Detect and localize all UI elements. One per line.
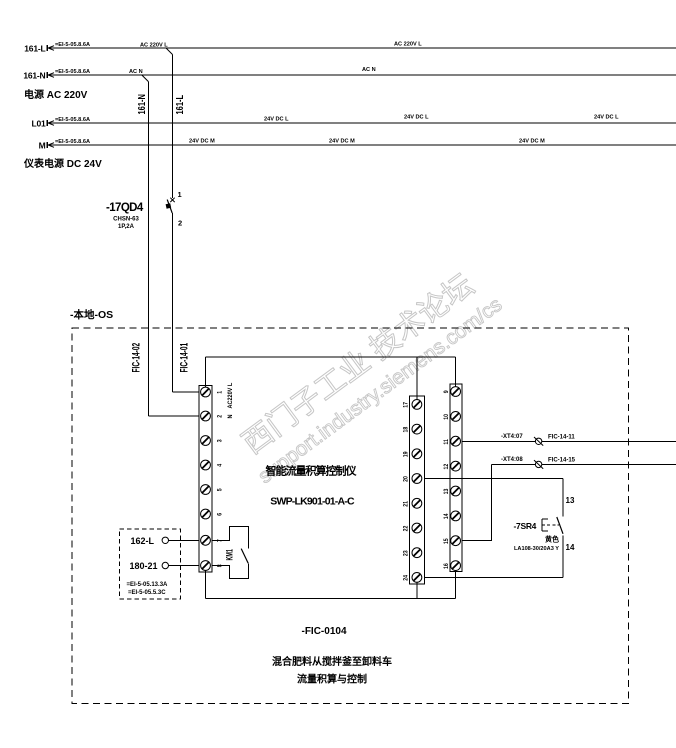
svg-text:KM1: KM1 (224, 549, 235, 560)
svg-text:24: 24 (403, 574, 410, 580)
svg-text:2: 2 (178, 219, 182, 228)
svg-text:-XT4:07: -XT4:07 (501, 434, 523, 440)
svg-text:N: N (227, 415, 233, 419)
svg-text:混合肥料从搅拌釜至卸料车: 混合肥料从搅拌釜至卸料车 (272, 655, 392, 668)
svg-text:24V DC M: 24V DC M (519, 139, 545, 145)
svg-text:16: 16 (443, 563, 450, 569)
svg-text:=EI-5-05.8.6A: =EI-5-05.8.6A (55, 139, 90, 145)
svg-text:15: 15 (443, 538, 450, 544)
svg-text:=EI-5-05.8.6A: =EI-5-05.8.6A (55, 69, 90, 75)
svg-text:M: M (39, 141, 46, 151)
svg-text:14: 14 (443, 513, 450, 519)
svg-text:18: 18 (403, 426, 410, 432)
svg-text:161-N: 161-N (136, 94, 147, 114)
svg-text:22: 22 (403, 525, 410, 531)
svg-text:20: 20 (403, 475, 410, 481)
svg-text:23: 23 (403, 550, 410, 556)
svg-text:AC220V L: AC220V L (227, 382, 233, 408)
svg-text:-XT4:08: -XT4:08 (501, 457, 523, 463)
svg-text:FIC-14-11: FIC-14-11 (548, 435, 575, 441)
svg-text:24V DC M: 24V DC M (329, 139, 355, 145)
svg-text:=EI-5-05.13.3A: =EI-5-05.13.3A (127, 582, 169, 588)
svg-text:13: 13 (443, 488, 450, 494)
svg-text:LA108-30/20A3 Y: LA108-30/20A3 Y (514, 546, 559, 552)
svg-text:5: 5 (217, 488, 224, 492)
svg-text:-本地-OS: -本地-OS (70, 308, 113, 321)
svg-text:19: 19 (403, 451, 410, 457)
svg-text:support.industry.siemens.com/c: support.industry.siemens.com/cs (254, 293, 506, 488)
svg-text:13: 13 (566, 496, 575, 505)
svg-text:24V DC L: 24V DC L (264, 117, 289, 123)
svg-text:10: 10 (443, 413, 450, 419)
svg-text:14: 14 (566, 543, 575, 552)
svg-text:24V DC L: 24V DC L (404, 115, 429, 121)
svg-text:AC N: AC N (362, 67, 376, 73)
svg-text:161-N: 161-N (23, 71, 45, 81)
svg-text:=EI-5-05.8.6A: =EI-5-05.8.6A (55, 42, 90, 48)
svg-text:1P,2A: 1P,2A (118, 224, 135, 230)
svg-text:17: 17 (403, 401, 410, 407)
svg-text:21: 21 (403, 500, 410, 506)
svg-text:L01: L01 (31, 119, 46, 129)
svg-text:FIC-14-15: FIC-14-15 (548, 458, 576, 464)
svg-text:161-L: 161-L (24, 44, 45, 54)
svg-text:=EI-5-05.5.3C: =EI-5-05.5.3C (128, 590, 166, 596)
svg-text:仪表电源 DC 24V: 仪表电源 DC 24V (23, 157, 102, 170)
svg-text:24V DC L: 24V DC L (594, 115, 619, 121)
svg-text:12: 12 (443, 463, 450, 469)
svg-text:AC N: AC N (129, 69, 143, 75)
svg-text:-17QD4: -17QD4 (106, 202, 144, 214)
svg-text:2: 2 (217, 414, 224, 418)
svg-text:4: 4 (217, 463, 224, 467)
svg-text:9: 9 (443, 390, 450, 394)
svg-text:1: 1 (178, 190, 182, 199)
svg-text:3: 3 (217, 439, 224, 443)
svg-text:AC 220V L: AC 220V L (394, 42, 422, 48)
svg-text:6: 6 (217, 512, 224, 516)
svg-text:161-L: 161-L (174, 94, 185, 114)
svg-text:西门子工业 技术论坛: 西门子工业 技术论坛 (237, 268, 480, 460)
svg-text:-7SR4: -7SR4 (514, 521, 537, 531)
svg-text:流量积算与控制: 流量积算与控制 (297, 673, 367, 686)
svg-text:11: 11 (443, 438, 450, 444)
svg-text:AC 220V L: AC 220V L (140, 43, 168, 49)
svg-text:162-L: 162-L (131, 536, 155, 546)
svg-text:180-21: 180-21 (130, 561, 158, 571)
svg-text:FIC-14-02: FIC-14-02 (130, 343, 142, 373)
svg-text:SWP-LK901-01-A-C: SWP-LK901-01-A-C (270, 496, 355, 508)
svg-text:电源 AC 220V: 电源 AC 220V (24, 88, 88, 101)
svg-text:黄色: 黄色 (545, 535, 559, 544)
svg-text:CHSN-63: CHSN-63 (113, 217, 139, 223)
svg-text:1: 1 (217, 390, 224, 394)
svg-text:24V DC M: 24V DC M (189, 139, 215, 145)
svg-text:-FIC-0104: -FIC-0104 (301, 626, 346, 637)
svg-text:智能流量积算控制仪: 智能流量积算控制仪 (266, 464, 358, 478)
svg-text:FIC-14-01: FIC-14-01 (178, 343, 190, 373)
svg-text:=EI-5-05.8.6A: =EI-5-05.8.6A (55, 117, 90, 123)
